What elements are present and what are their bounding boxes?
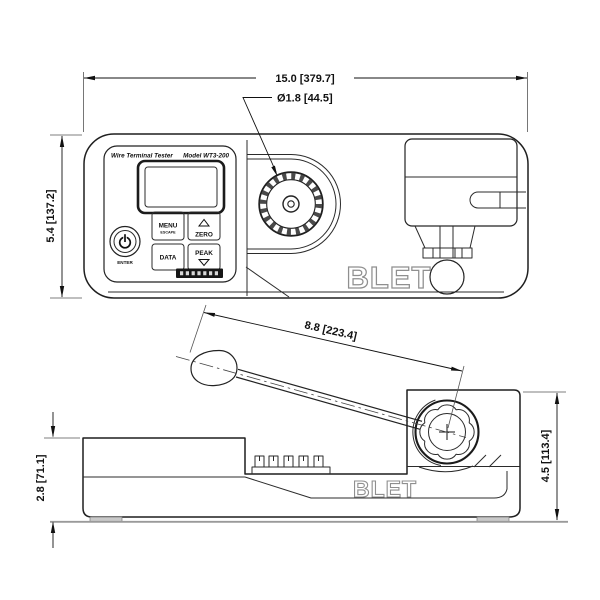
enter-label: ENTER — [117, 260, 133, 265]
dial-diameter-dimension: Ø1.8 [44.5] — [277, 93, 333, 105]
lever-centerline — [176, 357, 466, 438]
escape-label: ESCAPE — [160, 231, 176, 235]
clamp-knob-plan — [430, 260, 464, 294]
lever-dimension-line — [204, 313, 462, 372]
arrow-right — [516, 76, 527, 80]
technical-drawing-page: Wire Terminal Tester Model WT3-200 ENTER… — [0, 0, 600, 600]
overall-width-dimension: 15.0 [379.7] — [275, 73, 335, 85]
serrated-jaws — [252, 456, 330, 474]
arrow-left — [84, 76, 95, 80]
clamp-wheel — [413, 400, 479, 466]
lcd-display-screen — [145, 167, 217, 207]
arrow-down — [555, 509, 559, 521]
lever-ball-handle — [191, 351, 237, 386]
connector-block — [405, 139, 517, 226]
lever-length-dimension: 8.8 [223.4] — [303, 319, 358, 343]
arrow-left — [204, 313, 215, 317]
arrow-up — [555, 393, 559, 405]
zero-label: ZERO — [195, 232, 213, 239]
leader-arrow — [271, 166, 277, 177]
body-height-dimension: 5.4 [137.2] — [45, 189, 57, 243]
down-triangle-icon — [199, 260, 209, 266]
peak-label: PEAK — [195, 250, 213, 257]
slash-marks — [474, 455, 501, 467]
blet-logo-side: BLET — [353, 476, 417, 502]
arrow-down — [51, 426, 55, 438]
wire-terminal-tester-drawing: Wire Terminal Tester Model WT3-200 ENTER… — [0, 0, 600, 600]
arrow-right — [451, 367, 462, 371]
menu-label: MENU — [159, 223, 178, 230]
clamp-height-dimension: 4.5 [113.4] — [540, 429, 552, 482]
arrow-up — [60, 136, 64, 148]
panel-title: Wire Terminal Tester — [111, 153, 173, 160]
power-icon — [120, 234, 131, 248]
up-triangle-icon — [199, 220, 209, 227]
panel-model-label: Model WT3-200 — [183, 153, 229, 160]
front-view: Wire Terminal Tester Model WT3-200 ENTER… — [84, 134, 528, 298]
dial-knob — [259, 172, 323, 236]
blet-logo-front: BLET — [347, 260, 432, 295]
base-height-dimension: 2.8 [71.1] — [35, 454, 47, 501]
side-view: BLET — [50, 351, 568, 522]
foot-pad-left — [90, 517, 122, 522]
arrow-down — [60, 286, 64, 298]
data-label: DATA — [160, 255, 177, 262]
arrow-up — [51, 522, 55, 534]
foot-pad-right — [477, 517, 509, 522]
lcd-display-bezel — [138, 161, 224, 213]
clamp-stem — [440, 226, 453, 258]
side-view-dimensions: 8.8 [223.4] 2.8 [71.1] 4.5 [113.4] — [35, 305, 566, 548]
